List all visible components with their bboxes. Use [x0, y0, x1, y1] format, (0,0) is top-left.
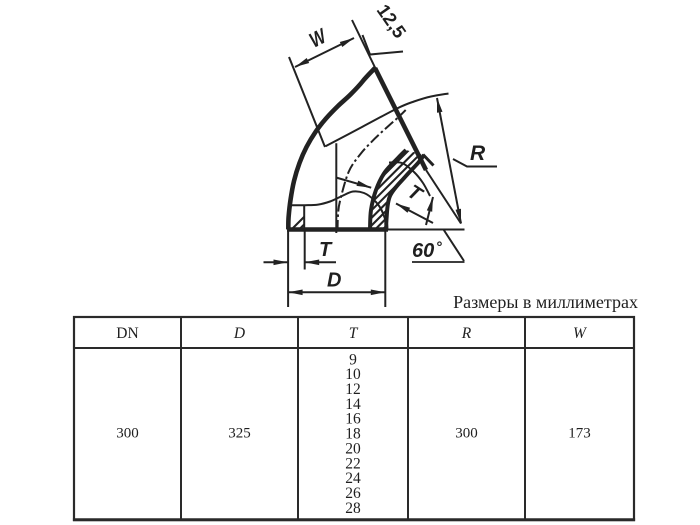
- svg-text:325: 325: [228, 426, 251, 442]
- svg-text:R: R: [461, 325, 472, 342]
- svg-text:28: 28: [345, 500, 361, 517]
- svg-text:300: 300: [116, 426, 139, 442]
- svg-text:T: T: [319, 239, 333, 261]
- svg-text:D: D: [233, 325, 245, 342]
- svg-text:R: R: [470, 142, 486, 165]
- svg-text:12,5: 12,5: [373, 0, 411, 42]
- svg-text:W: W: [305, 23, 331, 52]
- svg-text:Размеры в миллиметрах: Размеры в миллиметрах: [453, 292, 638, 312]
- svg-text:173: 173: [568, 426, 591, 442]
- svg-text:W: W: [573, 325, 588, 342]
- svg-text:DN: DN: [116, 325, 138, 342]
- svg-text:300: 300: [455, 426, 478, 442]
- svg-text:D: D: [327, 270, 341, 292]
- svg-text:T: T: [349, 325, 359, 342]
- svg-text:60°: 60°: [412, 239, 443, 262]
